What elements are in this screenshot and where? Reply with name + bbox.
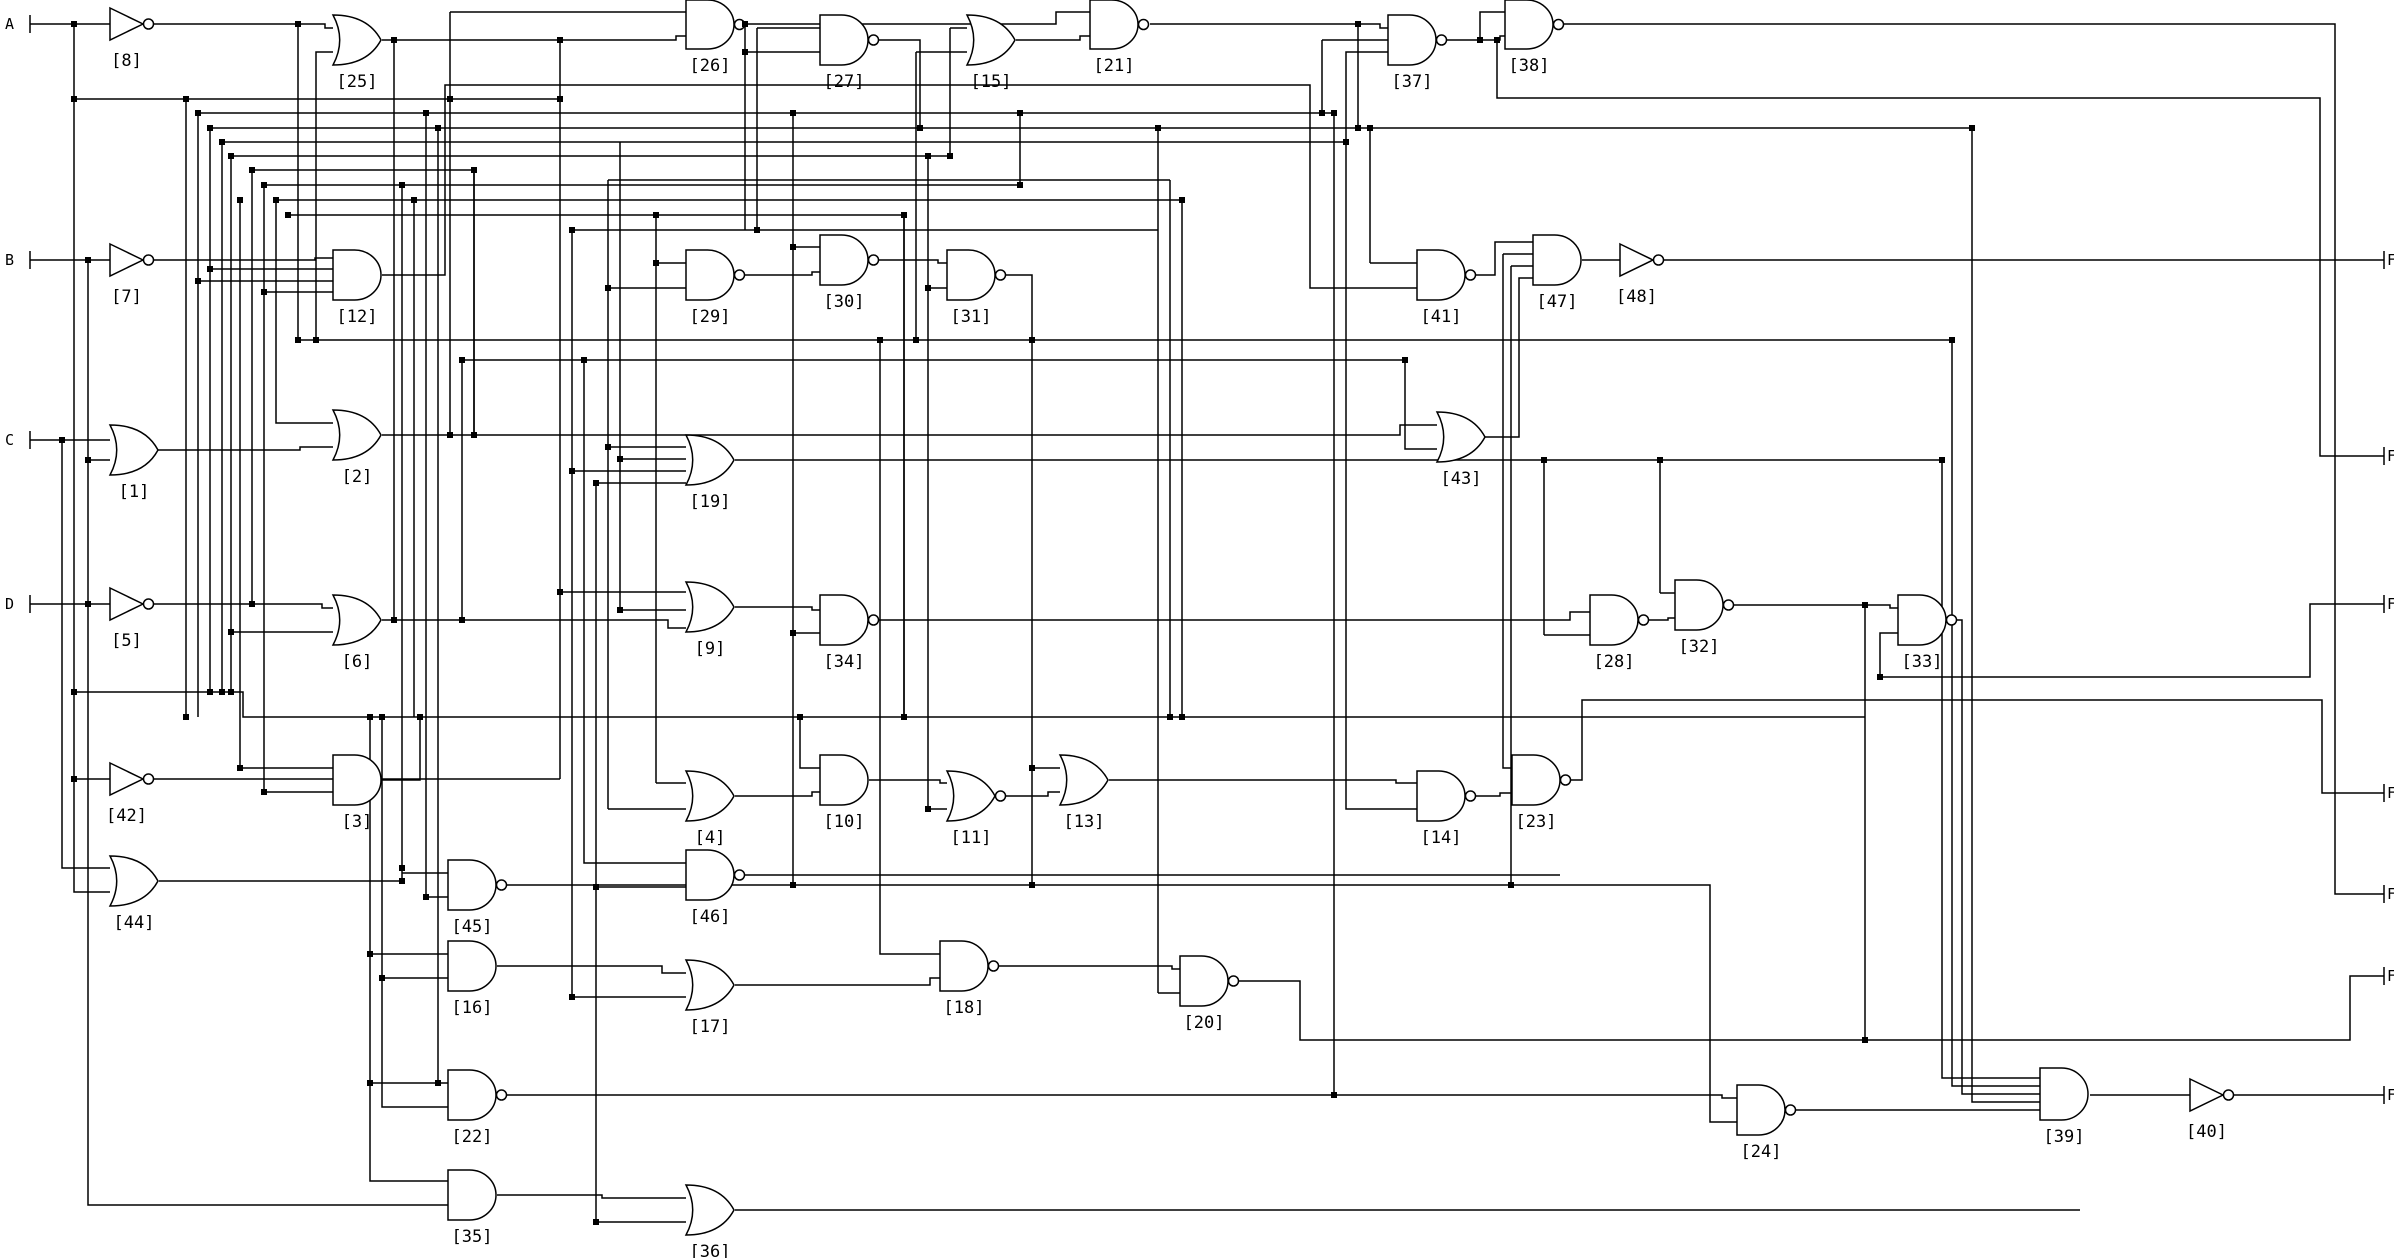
gate-27: [27] <box>820 15 879 92</box>
gate-label: [33] <box>1902 652 1943 672</box>
wire <box>876 612 1590 620</box>
junction-dot <box>617 607 623 613</box>
nand-gate-shape <box>1512 755 1560 805</box>
or-gate-shape <box>333 410 381 460</box>
junction-dot <box>1862 602 1868 608</box>
gate-label: [37] <box>1392 72 1433 92</box>
gate-2: [2] <box>333 410 381 487</box>
gate-label: [5] <box>111 631 142 651</box>
circuit-canvas: [8][25][26][27][15][21][37][38][7][12][2… <box>0 0 2394 1258</box>
junction-dot <box>435 125 441 131</box>
junction-dot <box>391 37 397 43</box>
junction-dot <box>285 212 291 218</box>
junction-dot <box>569 994 575 1000</box>
gate-14: [14] <box>1417 771 1476 848</box>
gate-label: [41] <box>1421 307 1462 327</box>
wire <box>1473 793 1512 796</box>
junction-dot <box>790 110 796 116</box>
gate-41: [41] <box>1417 250 1476 327</box>
gate-label: [20] <box>1184 1013 1225 1033</box>
junction-dot <box>295 337 301 343</box>
gate-label: [4] <box>695 828 726 848</box>
or-gate-shape <box>1437 412 1485 462</box>
output-label: F0 <box>2387 595 2394 613</box>
inv-gate-shape <box>110 8 143 40</box>
nand-gate-shape <box>820 235 868 285</box>
inversion-bubble <box>996 791 1006 801</box>
gate-label: [10] <box>824 812 865 832</box>
gate-label: [30] <box>824 292 865 312</box>
junction-dot <box>367 1080 373 1086</box>
junction-dot <box>593 480 599 486</box>
nand-gate-shape <box>1388 15 1436 65</box>
gate-39: [39] <box>2040 1068 2088 1147</box>
gate-10: [10] <box>820 755 868 832</box>
junction-dot <box>925 153 931 159</box>
junction-dot <box>1331 1092 1337 1098</box>
junction-dot <box>195 278 201 284</box>
junction-dot <box>71 96 77 102</box>
gate-1: [1] <box>110 425 158 502</box>
input-d: D <box>5 595 30 613</box>
or-gate-shape <box>333 595 381 645</box>
and-gate-shape <box>333 755 381 805</box>
gate-label: [31] <box>951 307 992 327</box>
junction-dot <box>183 96 189 102</box>
junction-dot <box>391 617 397 623</box>
wire <box>497 966 686 973</box>
junction-dot <box>1355 125 1361 131</box>
gate-17: [17] <box>686 960 734 1037</box>
gate-label: [39] <box>2044 1127 2085 1147</box>
inversion-bubble <box>989 961 999 971</box>
and-gate-shape <box>820 755 868 805</box>
nand-gate-shape <box>448 1070 496 1120</box>
wire <box>382 85 1417 288</box>
inversion-bubble <box>869 35 879 45</box>
wire <box>1568 700 2384 793</box>
gate-label: [29] <box>690 307 731 327</box>
inv-gate-shape <box>110 244 143 276</box>
gate-40: [40] <box>2186 1079 2233 1142</box>
junction-dot <box>653 212 659 218</box>
junction-dot <box>947 153 953 159</box>
junction-dot <box>653 260 659 266</box>
gate-label: [8] <box>111 51 142 71</box>
gate-4: [4] <box>686 771 734 848</box>
input-label: D <box>5 595 14 613</box>
wire <box>1405 360 1437 449</box>
gate-44: [44] <box>110 856 158 933</box>
junction-dot <box>423 894 429 900</box>
junction-dot <box>901 714 907 720</box>
gate-label: [42] <box>106 806 147 826</box>
gate-22: [22] <box>448 1070 507 1147</box>
junction-dot <box>207 125 213 131</box>
nand-gate-shape <box>1090 0 1138 49</box>
junction-dot <box>399 878 405 884</box>
gate-31: [31] <box>947 250 1006 327</box>
output-label: F1 <box>2387 447 2394 465</box>
gate-label: [9] <box>695 639 726 659</box>
junction-dot <box>1331 110 1337 116</box>
junction-dot <box>1355 21 1361 27</box>
gate-33: [33] <box>1898 595 1957 672</box>
junction-dot <box>1494 37 1500 43</box>
junction-dot <box>1657 457 1663 463</box>
junction-dot <box>447 96 453 102</box>
junction-dot <box>1319 110 1325 116</box>
inversion-bubble <box>2224 1090 2234 1100</box>
gate-label: [1] <box>119 482 150 502</box>
junction-dot <box>261 182 267 188</box>
junction-dot <box>207 266 213 272</box>
junction-dot <box>877 337 883 343</box>
junction-dot <box>557 96 563 102</box>
or-gate-shape <box>110 856 158 906</box>
junction-dot <box>754 227 760 233</box>
junction-dot <box>790 244 796 250</box>
gate-46: [46] <box>686 850 745 927</box>
gate-3: [3] <box>333 755 381 832</box>
junction-dot <box>790 882 796 888</box>
junction-dot <box>1017 182 1023 188</box>
wire <box>504 1095 1737 1098</box>
wire <box>1109 780 1417 783</box>
junction-dot <box>459 357 465 363</box>
nand-gate-shape <box>820 595 868 645</box>
junction-dot <box>1155 125 1161 131</box>
junction-dot <box>1541 457 1547 463</box>
junction-dot <box>925 285 931 291</box>
or-gate-shape <box>967 15 1015 65</box>
junction-dot <box>313 337 319 343</box>
nand-gate-shape <box>940 941 988 991</box>
junction-dot <box>593 1219 599 1225</box>
or-gate-shape <box>686 582 734 632</box>
junction-dot <box>617 456 623 462</box>
junction-dot <box>273 197 279 203</box>
gate-35: [35] <box>448 1170 496 1247</box>
gate-36: [36] <box>686 1185 734 1258</box>
wire <box>1150 24 1388 28</box>
junction-dot <box>261 789 267 795</box>
output-f5: F5 <box>2384 885 2394 903</box>
gate-label: [26] <box>690 56 731 76</box>
junction-dot <box>219 139 225 145</box>
wire <box>1880 633 1898 677</box>
junction-dot <box>1017 110 1023 116</box>
junction-dot <box>85 601 91 607</box>
inversion-bubble <box>869 615 879 625</box>
wire <box>150 24 333 28</box>
junction-dot <box>917 125 923 131</box>
wire <box>742 272 820 275</box>
junction-dot <box>295 21 301 27</box>
junction-dot <box>593 884 599 890</box>
inversion-bubble <box>1654 255 1664 265</box>
and-gate-shape <box>448 1170 496 1220</box>
input-label: B <box>5 251 14 269</box>
or-gate-shape <box>686 960 734 1010</box>
gate-38: [38] <box>1505 0 1564 76</box>
output-f1: F1 <box>2384 447 2394 465</box>
junction-dot <box>71 776 77 782</box>
junction-dot <box>435 1080 441 1086</box>
gate-label: [18] <box>944 998 985 1018</box>
junction-dot <box>790 630 796 636</box>
gate-24: [24] <box>1737 1085 1796 1162</box>
inversion-bubble <box>1139 20 1149 30</box>
gate-9: [9] <box>686 582 734 659</box>
output-label: F6 <box>2387 251 2394 269</box>
gate-13: [13] <box>1060 755 1108 832</box>
wire <box>876 40 920 128</box>
gate-15: [15] <box>967 15 1015 92</box>
inversion-bubble <box>1947 615 1957 625</box>
gate-37: [37] <box>1388 15 1447 92</box>
junction-dot <box>367 714 373 720</box>
wire <box>1346 52 1417 809</box>
junction-dot <box>569 227 575 233</box>
input-label: C <box>5 431 14 449</box>
gate-label: [45] <box>452 917 493 937</box>
nand-gate-shape <box>820 15 868 65</box>
gate-label: [13] <box>1064 812 1105 832</box>
junction-dot <box>1029 765 1035 771</box>
junction-dot <box>1969 125 1975 131</box>
input-a: A <box>5 15 30 33</box>
gate-label: [38] <box>1509 56 1550 76</box>
inversion-bubble <box>1554 20 1564 30</box>
or-gate-shape <box>686 435 734 485</box>
wire <box>382 717 420 780</box>
junction-dot <box>901 212 907 218</box>
gate-12: [12] <box>333 250 381 327</box>
gate-8: [8] <box>110 8 154 71</box>
junction-dot <box>1167 714 1173 720</box>
gate-label: [14] <box>1421 828 1462 848</box>
junction-dot <box>742 21 748 27</box>
inversion-bubble <box>996 270 1006 280</box>
logic-circuit-diagram: [8][25][26][27][15][21][37][38][7][12][2… <box>0 0 2394 1258</box>
gate-label: [3] <box>342 812 373 832</box>
inv-gate-shape <box>110 763 143 795</box>
junction-dot <box>249 601 255 607</box>
gate-label: [48] <box>1616 287 1657 307</box>
wire <box>316 52 333 340</box>
nand-gate-shape <box>1417 250 1465 300</box>
gate-5: [5] <box>110 588 154 651</box>
junction-dot <box>1179 714 1185 720</box>
wire <box>382 620 686 628</box>
gate-34: [34] <box>820 595 879 672</box>
nand-gate-shape <box>1590 595 1638 645</box>
gate-label: [16] <box>452 998 493 1018</box>
output-label: F4 <box>2387 967 2394 985</box>
junction-dot <box>237 765 243 771</box>
junction-dot <box>1939 457 1945 463</box>
wire <box>1952 340 2040 1086</box>
output-label: F2 <box>2387 1086 2394 1104</box>
nand-gate-shape <box>686 250 734 300</box>
wire <box>880 340 940 954</box>
gate-label: [17] <box>690 1017 731 1037</box>
wire <box>1444 40 2384 456</box>
nand-gate-shape <box>1417 771 1465 821</box>
wire <box>735 978 940 985</box>
gate-label: [12] <box>337 307 378 327</box>
nand-gate-shape <box>448 860 496 910</box>
nand-gate-shape <box>1898 595 1946 645</box>
junction-dot <box>1949 337 1955 343</box>
wire <box>1236 976 2384 1040</box>
output-f6: F6 <box>2384 251 2394 269</box>
nand-gate-shape <box>1180 956 1228 1006</box>
inversion-bubble <box>1724 600 1734 610</box>
junction-dot <box>1877 674 1883 680</box>
wire <box>382 36 686 40</box>
junction-dot <box>183 714 189 720</box>
wire <box>800 717 820 768</box>
and-gate-shape <box>2040 1068 2088 1120</box>
gate-label: [44] <box>114 913 155 933</box>
wire <box>1972 128 2040 1102</box>
or-gate-shape <box>333 15 381 65</box>
junction-dot <box>1477 37 1483 43</box>
gate-6: [6] <box>333 595 381 672</box>
gate-25: [25] <box>333 15 381 92</box>
inversion-bubble <box>144 774 154 784</box>
wire <box>996 966 1180 969</box>
inversion-bubble <box>1786 1105 1796 1115</box>
junction-dot <box>1862 1037 1868 1043</box>
gate-label: [27] <box>824 72 865 92</box>
gate-label: [15] <box>971 72 1012 92</box>
junction-dot <box>399 865 405 871</box>
junction-dot <box>379 714 385 720</box>
wire <box>1731 605 1898 608</box>
output-f0: F0 <box>2384 595 2394 613</box>
output-label: F5 <box>2387 885 2394 903</box>
gate-label: [28] <box>1594 652 1635 672</box>
gate-label: [19] <box>690 492 731 512</box>
junction-dot <box>423 110 429 116</box>
inv-gate-shape <box>110 588 143 620</box>
inversion-bubble <box>144 19 154 29</box>
junction-dot <box>59 437 65 443</box>
gate-label: [25] <box>337 72 378 92</box>
output-f2: F2 <box>2384 1086 2394 1104</box>
gate-11: [11] <box>947 771 1006 848</box>
output-f4: F4 <box>2384 967 2394 985</box>
wire <box>876 260 947 263</box>
junction-dot <box>459 617 465 623</box>
input-b: B <box>5 251 30 269</box>
input-c: C <box>5 431 30 449</box>
junction-dot <box>237 197 243 203</box>
gate-label: [2] <box>342 467 373 487</box>
gate-label: [21] <box>1094 56 1135 76</box>
junction-dot <box>471 167 477 173</box>
and-gate-shape <box>1533 235 1581 285</box>
junction-dot <box>71 21 77 27</box>
gate-label: [46] <box>690 907 731 927</box>
output-f3: F3 <box>2384 784 2394 802</box>
inversion-bubble <box>1229 976 1239 986</box>
gate-43: [43] <box>1437 412 1485 489</box>
gate-label: [23] <box>1516 812 1557 832</box>
gate-label: [32] <box>1679 637 1720 657</box>
gate-28: [28] <box>1590 595 1649 672</box>
wire <box>744 12 1090 24</box>
and-gate-shape <box>333 250 381 300</box>
nand-gate-shape <box>686 0 734 49</box>
junction-dot <box>913 337 919 343</box>
inversion-bubble <box>1561 775 1571 785</box>
wire-layer <box>30 12 2384 1222</box>
input-label: A <box>5 15 14 33</box>
junction-dot <box>605 285 611 291</box>
junction-dot <box>71 689 77 695</box>
gate-label: [22] <box>452 1127 493 1147</box>
inversion-bubble <box>735 870 745 880</box>
junction-dot <box>367 951 373 957</box>
inversion-bubble <box>735 270 745 280</box>
junction-dot <box>742 49 748 55</box>
junction-dot <box>417 714 423 720</box>
gate-label: [47] <box>1537 292 1578 312</box>
junction-dot <box>557 37 563 43</box>
junction-dot <box>1179 197 1185 203</box>
junction-dot <box>1508 882 1514 888</box>
gate-label: [36] <box>690 1242 731 1258</box>
junction-dot <box>228 629 234 635</box>
or-gate-shape <box>686 1185 734 1235</box>
junction-dot <box>219 689 225 695</box>
junction-dot <box>85 257 91 263</box>
gate-label: [11] <box>951 828 992 848</box>
junction-dot <box>797 714 803 720</box>
inversion-bubble <box>869 255 879 265</box>
nand-gate-shape <box>1675 580 1723 630</box>
junction-dot <box>195 110 201 116</box>
gate-21: [21] <box>1090 0 1149 76</box>
nor-gate-shape <box>947 771 995 821</box>
gate-47: [47] <box>1533 235 1581 312</box>
wire <box>158 447 333 450</box>
output-label: F3 <box>2387 784 2394 802</box>
wire <box>62 440 110 868</box>
gate-23: [23] <box>1512 755 1571 832</box>
junction-dot <box>605 444 611 450</box>
wire <box>497 1195 686 1198</box>
wire <box>74 692 1865 717</box>
nand-gate-shape <box>1737 1085 1785 1135</box>
wire <box>382 425 1437 435</box>
wire <box>1485 278 1533 437</box>
inversion-bubble <box>1437 35 1447 45</box>
inv-gate-shape <box>2190 1079 2223 1111</box>
inversion-bubble <box>497 1090 507 1100</box>
inv-gate-shape <box>1620 244 1653 276</box>
wire <box>735 792 820 796</box>
gate-label: [35] <box>452 1227 493 1247</box>
wire <box>1006 792 1060 796</box>
inversion-bubble <box>497 880 507 890</box>
and-gate-shape <box>448 941 496 991</box>
inversion-bubble <box>1639 615 1649 625</box>
